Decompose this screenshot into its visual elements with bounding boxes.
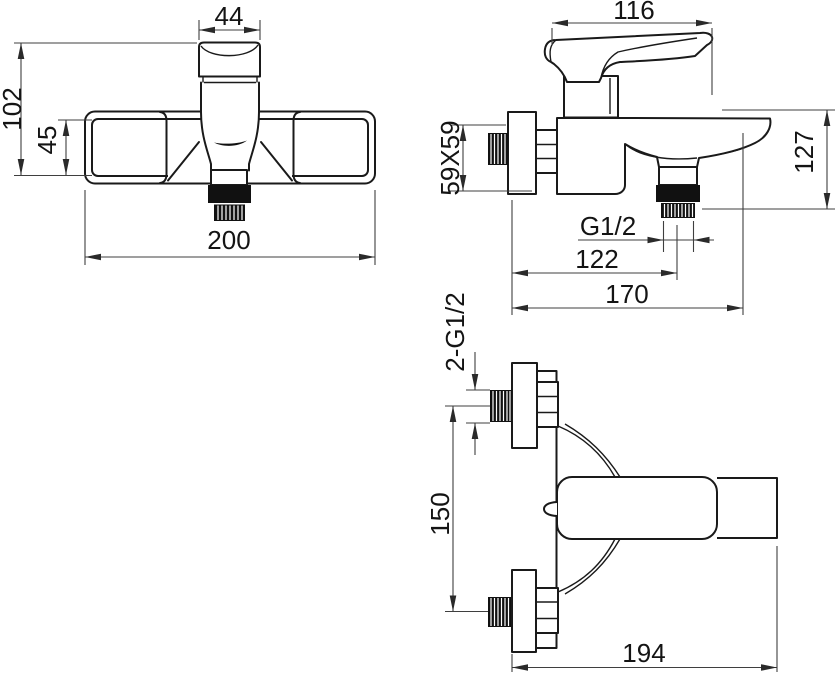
plan-upper-hex-nut [537, 382, 558, 427]
dim-side-wall-to-spout-tip: 170 [605, 279, 648, 309]
front-outlet-nut [208, 185, 251, 203]
plan-upper-flange [512, 363, 537, 448]
dim-front-body-height: 45 [32, 126, 62, 155]
side-outlet-nut [656, 185, 700, 202]
dim-side-flange-size: 59X59 [435, 120, 465, 195]
side-view: 116 59X59 127 G1/2 122 170 [435, 0, 835, 315]
plan-lower-hex-nut [536, 588, 558, 633]
top-view: 2-G1/2 150 194 [425, 292, 777, 672]
front-spout-head [199, 43, 260, 77]
side-hex-nut [536, 130, 557, 173]
top-view-body [488, 363, 777, 652]
plan-handle-button [544, 502, 557, 516]
front-view: 44 102 45 200 [0, 1, 375, 265]
dim-front-overall-width: 200 [207, 225, 250, 255]
dim-plan-overall-depth: 194 [622, 638, 665, 668]
dim-side-outlet-thread: G1/2 [580, 211, 636, 241]
side-view-body [488, 33, 770, 218]
dim-plan-inlet-spacing: 150 [425, 492, 455, 535]
dim-front-overall-height: 102 [0, 87, 27, 130]
dim-side-wall-to-outlet: 122 [575, 244, 618, 274]
plan-lower-flange [512, 570, 536, 652]
dim-side-handle-length: 116 [613, 0, 654, 25]
plan-spout [717, 478, 777, 538]
side-wall-flange [508, 112, 536, 194]
dim-plan-inlet-threads: 2-G1/2 [440, 292, 470, 372]
front-view-body [85, 43, 375, 222]
side-outlet-collar [659, 167, 697, 185]
front-outlet-collar [211, 170, 247, 185]
technical-drawing-faucet: 44 102 45 200 [0, 0, 836, 675]
front-view-dimensions: 44 102 45 200 [0, 1, 375, 265]
plan-handle [557, 477, 717, 539]
dim-side-overall-height: 127 [789, 130, 819, 173]
dim-front-spout-width: 44 [215, 1, 244, 31]
